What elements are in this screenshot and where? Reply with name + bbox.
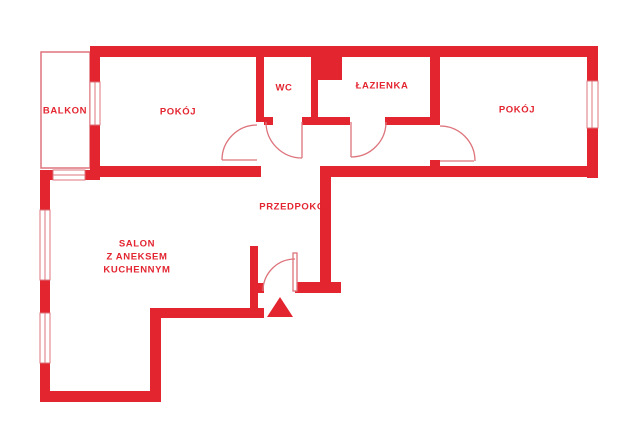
wall-livingroom-west-3 xyxy=(40,363,50,402)
label-room1: POKÓJ xyxy=(160,107,196,118)
wall-hall-east xyxy=(320,166,331,293)
wall-livingroom-west-2 xyxy=(40,280,50,313)
wall-hall-west xyxy=(250,246,258,318)
label-balcony: BALKON xyxy=(43,106,87,117)
wall-wc-south-mid xyxy=(302,117,350,125)
floor-plan-drawing xyxy=(0,0,633,448)
wall-room2-west-stub xyxy=(430,160,440,177)
wall-hall-south xyxy=(158,308,264,318)
wall-room1-west-upper xyxy=(90,46,100,82)
duct-block xyxy=(311,57,342,80)
label-wc: WC xyxy=(275,83,292,94)
wall-wc-south-west xyxy=(264,117,273,125)
wall-livingroom-east xyxy=(150,308,161,402)
wall-livingroom-south xyxy=(40,391,161,402)
wall-livingroom-north-1 xyxy=(40,170,53,180)
wall-top xyxy=(90,46,598,57)
door-arc-room2 xyxy=(440,126,475,161)
floor-plan: BALKON POKÓJ WC ŁAZIENKA POKÓJ PRZEDPOKÓ… xyxy=(0,0,633,448)
wall-south-right xyxy=(320,166,598,177)
door-arc-wc xyxy=(266,122,302,158)
label-livingroom: SALON Z ANEKSEM KUCHENNYM xyxy=(103,238,170,277)
label-bathroom: ŁAZIENKA xyxy=(356,81,409,92)
wall-east-upper xyxy=(587,46,598,81)
door-arc-bathroom xyxy=(351,122,386,157)
wall-room2-west-upper xyxy=(430,57,440,125)
wall-wc-bathroom-divider xyxy=(311,80,318,125)
wall-room1-east xyxy=(256,57,264,122)
label-room2: POKÓJ xyxy=(499,105,535,116)
label-hallway: PRZEDPOKÓJ xyxy=(259,202,330,213)
door-arc-entrance xyxy=(263,259,295,291)
label-livingroom-line2: Z ANEKSEM xyxy=(103,251,170,264)
door-arc-room1 xyxy=(222,125,257,160)
wall-entrance-foot xyxy=(295,282,341,293)
entrance-arrow-icon xyxy=(267,297,293,317)
walls xyxy=(40,46,598,402)
wall-room1-south xyxy=(90,166,261,177)
label-livingroom-line3: KUCHENNYM xyxy=(103,264,170,277)
label-livingroom-line1: SALON xyxy=(103,238,170,251)
